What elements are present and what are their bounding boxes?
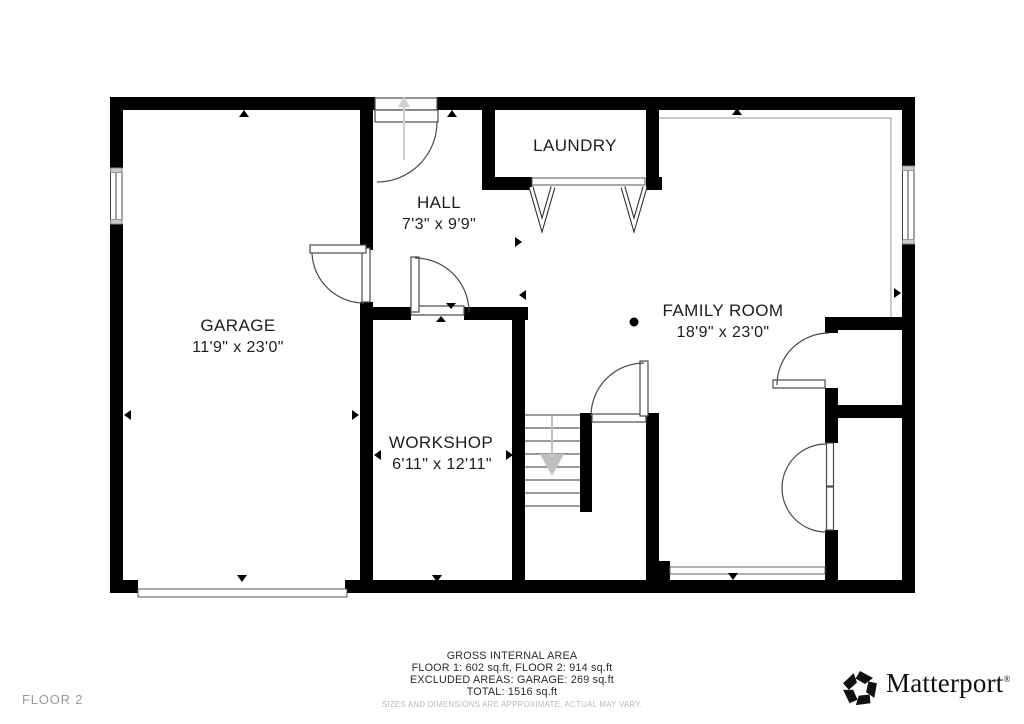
window-right [903,166,915,244]
wall-right-upper [902,97,915,166]
matterport-wordmark: Matterport® [886,668,1011,699]
wall-hall-south-left [360,307,411,320]
family-room-bottom-window [670,567,825,574]
wall-laundry-right [646,110,659,190]
wall-top-right [437,97,915,110]
workshop-label: WORKSHOP [389,433,493,453]
family-room-dimensions: 18'9" x 23'0" [677,324,770,342]
laundry-opening-threshold [532,178,645,185]
workshop-dimensions: 6'11" x 12'11" [392,456,492,474]
wall-top-left [110,97,375,110]
floorplan-page: GARAGE 11'9" x 23'0" HALL 7'3" x 9'9" LA… [0,0,1024,724]
wall-right-lower [902,244,915,593]
wall-landing-right [646,413,659,593]
wall-closet-left-c [825,530,838,593]
marker-garage-right [352,410,359,420]
wall-bottom-left-stub [110,580,138,593]
wall-laundry-bottom-left [482,177,532,190]
family-room-label: FAMILY ROOM [663,301,784,321]
door-closet-bottom [782,443,834,532]
floor-number-label: FLOOR 2 [22,692,83,707]
door-garage [310,245,370,303]
matterport-logo-icon [840,668,880,708]
footer-title: GROSS INTERNAL AREA [0,650,1024,662]
garage-vehicle-door [138,589,347,597]
marker-workshop-left [374,450,381,460]
wall-landing-stub [659,561,670,593]
garage-dimensions: 11'9" x 23'0" [192,339,284,357]
wall-workshop-right [512,307,525,593]
wall-left-lower [110,224,123,593]
marker-family-right [894,288,901,298]
wall-stair-right [580,413,592,512]
wall-garage-lower [360,302,373,593]
garage-label: GARAGE [200,316,275,336]
marker-hall-right [515,237,522,247]
scan-point-dot [630,318,639,327]
laundry-bifold-doors [531,187,645,225]
registered-mark: ® [1003,674,1010,684]
hall-label: HALL [417,193,461,213]
window-left [111,168,123,224]
marker-garage-top [239,110,249,117]
marker-workshop-top [436,316,446,322]
marker-garage-bottom [237,575,247,582]
door-closet-top [773,333,829,388]
wall-closet-left-a [825,317,838,333]
matterport-name: Matterport [886,668,1003,698]
family-room-ceiling-line [659,118,891,317]
wall-garage-upper [360,110,373,250]
entry-direction-arrow [398,96,410,160]
laundry-label: LAUNDRY [533,136,617,156]
matterport-branding: Matterport® [840,666,1020,710]
marker-garage-left [124,410,131,420]
wall-closet-left-b [825,388,838,443]
marker-workshop-right [506,450,513,460]
door-stairs [591,361,648,422]
marker-family-bottom [728,573,738,580]
marker-hall-top [447,110,457,117]
floorplan-drawing [0,0,1024,724]
wall-left-upper [110,97,123,168]
entry-door [375,98,438,182]
hall-dimensions: 7'3" x 9'9" [402,216,476,234]
door-hall-workshop [411,257,469,315]
marker-family-left [519,290,526,300]
